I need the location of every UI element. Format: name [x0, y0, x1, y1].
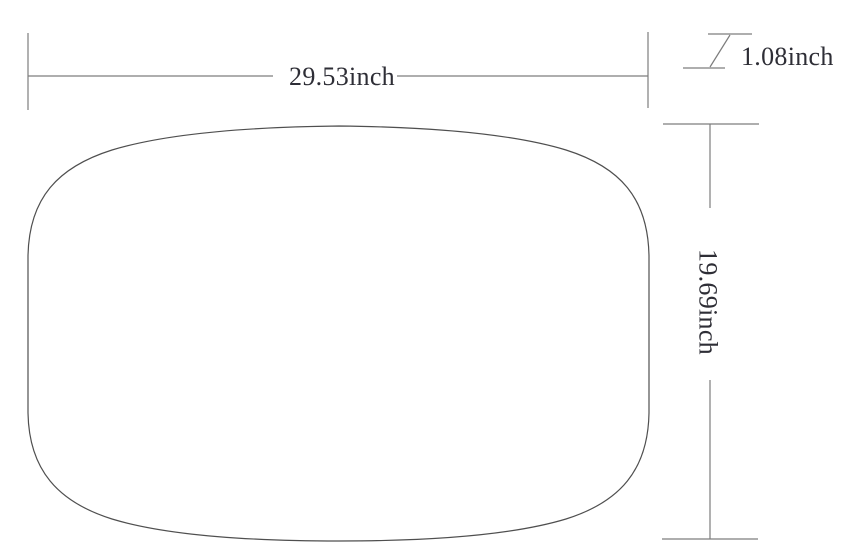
- thickness-label: 1.08inch: [741, 42, 834, 71]
- height-dimension: 19.69inch: [662, 124, 759, 539]
- thickness-diagonal-line: [710, 35, 730, 67]
- width-dimension: 29.53inch: [28, 32, 648, 110]
- technical-drawing-svg: 29.53inch 1.08inch 19.69inch: [0, 0, 860, 558]
- thickness-callout: 1.08inch: [683, 34, 834, 71]
- panel-outline-shape: [28, 126, 649, 541]
- height-label: 19.69inch: [694, 249, 723, 355]
- width-label: 29.53inch: [289, 62, 395, 91]
- dimension-diagram: 29.53inch 1.08inch 19.69inch: [0, 0, 860, 558]
